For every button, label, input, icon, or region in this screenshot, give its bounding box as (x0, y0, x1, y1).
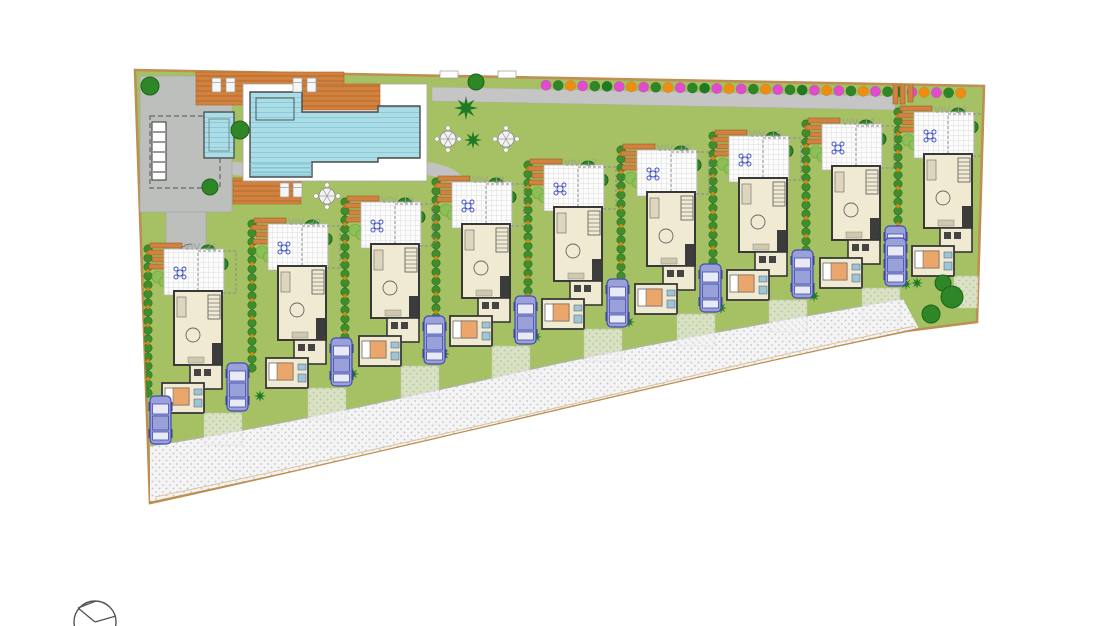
hedge-bush-icon (894, 153, 902, 161)
driveway-pad (677, 314, 715, 346)
boundary-bush-icon (553, 80, 563, 90)
kitchen-counter-icon (870, 218, 879, 240)
parked-car-icon (149, 396, 173, 444)
dining-table-icon (474, 261, 488, 275)
bath-fixture-icon (482, 332, 490, 340)
bedroom-annex (727, 270, 769, 300)
hedge-berry-icon (619, 260, 623, 264)
pergola-slat-icon (530, 159, 562, 164)
boundary-bush-icon (858, 86, 868, 96)
hedge-berry-icon (526, 203, 530, 207)
bath-fixture-icon (298, 364, 306, 370)
hedge-berry-icon (619, 170, 623, 174)
outdoor-kitchen-icon (152, 122, 166, 180)
bath-fixture-icon (391, 342, 399, 348)
sun-deck-south (233, 178, 301, 204)
bath-fixture-icon (391, 352, 399, 360)
parked-car-icon (330, 338, 354, 386)
hedge-berry-icon (146, 341, 150, 345)
boundary-bush-icon (834, 86, 844, 96)
sofa-icon (835, 172, 844, 192)
villa-label: VIV. 19 (381, 195, 414, 206)
hedge-bush-icon (617, 173, 625, 181)
hedge-berry-icon (711, 156, 715, 160)
boundary-bush-icon (773, 84, 783, 94)
bath-fixture-icon (574, 315, 582, 323)
bath-fixture-icon (759, 286, 767, 294)
hedge-berry-icon (804, 180, 808, 184)
driveway-pad (492, 346, 530, 378)
site-plan-svg: VIV. 13VIV. 14VIV. 15VIV. 16VIV. 17VIV. … (0, 0, 1110, 626)
terrace-tiles (268, 224, 328, 270)
hedge-bush-icon (524, 188, 532, 196)
terrace-tiles (822, 124, 882, 170)
bedroom-annex (450, 316, 492, 346)
parked-car-icon (514, 296, 538, 344)
boundary-bush-icon (712, 83, 722, 93)
parked-car-icon (226, 363, 250, 411)
stairs-icon (208, 295, 220, 319)
hedge-bush-icon (432, 259, 440, 267)
parked-car-icon (884, 238, 908, 286)
parked-car-icon (791, 250, 815, 298)
hedge-berry-icon (434, 256, 438, 260)
sofa-icon (465, 230, 474, 250)
hedge-bush-icon (617, 263, 625, 271)
bench-icon (498, 71, 516, 78)
hedge-berry-icon (434, 310, 438, 314)
driveway-pad (204, 413, 242, 445)
hedge-berry-icon (146, 359, 150, 363)
tree-icon (231, 121, 249, 139)
boundary-bush-icon (687, 83, 697, 93)
stairs-icon (866, 170, 878, 194)
boundary-bush-icon (821, 85, 831, 95)
hedge-bush-icon (894, 171, 902, 179)
hedge-bush-icon (144, 326, 152, 334)
hedge-berry-icon (896, 150, 900, 154)
villa-label: VIV. 21 (184, 242, 217, 253)
boundary-bush-icon (785, 85, 795, 95)
boundary-bush-icon (748, 84, 758, 94)
hedge-bush-icon (144, 308, 152, 316)
hedge-berry-icon (434, 292, 438, 296)
bath-fixture-icon (482, 322, 490, 328)
sun-lounger-icon (307, 78, 316, 92)
palm-icon (911, 277, 923, 289)
hedge-berry-icon (896, 186, 900, 190)
hedge-berry-icon (896, 204, 900, 208)
hedge-bush-icon (144, 290, 152, 298)
hedge-berry-icon (343, 240, 347, 244)
bath-fixture-icon (667, 290, 675, 296)
kitchen-counter-icon (685, 244, 694, 266)
hedge-berry-icon (526, 221, 530, 225)
sun-lounger-icon (293, 78, 302, 92)
kitchen-island-icon (292, 332, 308, 338)
bedroom-annex (820, 258, 862, 288)
stairs-icon (958, 158, 970, 182)
hedge-berry-icon (250, 352, 254, 356)
kitchen-counter-icon (316, 318, 325, 340)
hedge-berry-icon (804, 162, 808, 166)
sofa-icon (281, 272, 290, 292)
boundary-bush-icon (675, 83, 685, 93)
kitchen-island-icon (188, 357, 204, 363)
villa-label: VIV. 20 (288, 217, 321, 228)
hedge-bush-icon (524, 206, 532, 214)
boundary-bush-icon (699, 83, 709, 93)
hedge-berry-icon (250, 280, 254, 284)
hedge-bush-icon (248, 301, 256, 309)
boundary-bush-icon (541, 80, 551, 90)
hedge-bush-icon (524, 242, 532, 250)
bath-fixture-icon (574, 305, 582, 311)
hedge-bush-icon (894, 207, 902, 215)
hedge-berry-icon (711, 210, 715, 214)
hedge-berry-icon (434, 238, 438, 242)
hedge-bush-icon (709, 213, 717, 221)
hedge-bush-icon (709, 177, 717, 185)
hedge-berry-icon (250, 316, 254, 320)
boundary-bush-icon (614, 81, 624, 91)
stairs-icon (588, 211, 600, 235)
hedge-berry-icon (526, 257, 530, 261)
boundary-bush-icon (724, 83, 734, 93)
boundary-bush-icon (663, 82, 673, 92)
kitchen-counter-icon (500, 276, 509, 298)
hedge-bush-icon (524, 224, 532, 232)
boundary-bush-icon (797, 85, 807, 95)
villa-label: VIV. 15 (749, 129, 782, 140)
hedge-bush-icon (617, 209, 625, 217)
kitchen-counter-icon (962, 206, 971, 228)
terrace-tiles (637, 150, 697, 196)
hedge-berry-icon (343, 276, 347, 280)
dining-table-icon (290, 303, 304, 317)
hedge-bush-icon (617, 227, 625, 235)
driveway-pad (308, 388, 346, 420)
hedge-bush-icon (802, 165, 810, 173)
boundary-bush-icon (919, 87, 929, 97)
tree-icon (202, 179, 218, 195)
hedge-berry-icon (619, 242, 623, 246)
hedge-bush-icon (341, 315, 349, 323)
pergola-slat-icon (623, 144, 655, 149)
boundary-bush-icon (956, 88, 966, 98)
boundary-bush-icon (760, 84, 770, 94)
stairs-icon (405, 248, 417, 272)
bath-fixture-icon (194, 389, 202, 395)
pergola-slat-icon (808, 118, 840, 123)
pergola-slat-icon (900, 106, 932, 111)
pergola-slat-icon (254, 218, 286, 223)
kitchen-counter-icon (212, 343, 221, 365)
dining-table-icon (566, 244, 580, 258)
terrace-tiles (544, 165, 604, 211)
hedge-berry-icon (526, 239, 530, 243)
kitchen-island-icon (385, 310, 401, 316)
kitchen-island-icon (753, 244, 769, 250)
driveway-pad (584, 329, 622, 361)
bath-fixture-icon (852, 274, 860, 282)
hedge-berry-icon (250, 298, 254, 302)
hedge-bush-icon (144, 344, 152, 352)
terrace-tiles (164, 249, 224, 295)
boundary-bush-icon (638, 82, 648, 92)
boundary-bush-icon (736, 84, 746, 94)
bedroom-annex (266, 358, 308, 388)
pergola-slat-icon (347, 196, 379, 201)
bath-fixture-icon (944, 252, 952, 258)
boundary-bush-icon (882, 86, 892, 96)
bench-icon (440, 71, 458, 78)
kitchen-island-icon (846, 232, 862, 238)
boundary-bush-icon (651, 82, 661, 92)
dining-table-icon (844, 203, 858, 217)
kitchen-island-icon (476, 290, 492, 296)
dining-table-icon (659, 229, 673, 243)
kitchen-counter-icon (777, 230, 786, 252)
tree-icon (941, 286, 963, 308)
hedge-bush-icon (248, 355, 256, 363)
bedroom-annex (359, 336, 401, 366)
hedge-bush-icon (248, 319, 256, 327)
boundary-bush-icon (870, 86, 880, 96)
hedge-berry-icon (896, 132, 900, 136)
terrace-tiles (914, 112, 974, 158)
boundary-bush-icon (565, 80, 575, 90)
hedge-berry-icon (804, 234, 808, 238)
bath-fixture-icon (194, 399, 202, 407)
hedge-bush-icon (144, 272, 152, 280)
hedge-berry-icon (896, 168, 900, 172)
pergola-slat-icon (715, 130, 747, 135)
hedge-berry-icon (619, 224, 623, 228)
driveway-pad (401, 366, 439, 398)
hedge-bush-icon (894, 135, 902, 143)
hedge-bush-icon (524, 278, 532, 286)
hedge-bush-icon (248, 265, 256, 273)
hedge-bush-icon (248, 247, 256, 255)
sofa-icon (650, 198, 659, 218)
pergola-slat-icon (438, 176, 470, 181)
hedge-bush-icon (432, 295, 440, 303)
hedge-berry-icon (343, 258, 347, 262)
bedroom-annex (912, 246, 954, 276)
site-plan-canvas: VIV. 13VIV. 14VIV. 15VIV. 16VIV. 17VIV. … (0, 0, 1110, 626)
hedge-bush-icon (802, 183, 810, 191)
hedge-berry-icon (804, 216, 808, 220)
hedge-bush-icon (802, 237, 810, 245)
hedge-berry-icon (434, 220, 438, 224)
parked-car-icon (699, 264, 723, 312)
stairs-icon (496, 228, 508, 252)
hedge-bush-icon (248, 337, 256, 345)
stairs-icon (773, 182, 785, 206)
tree-icon (141, 77, 159, 95)
hedge-berry-icon (343, 222, 347, 226)
dining-table-icon (936, 191, 950, 205)
tree-icon (922, 305, 940, 323)
bath-fixture-icon (298, 374, 306, 382)
hedge-berry-icon (146, 305, 150, 309)
hedge-bush-icon (802, 219, 810, 227)
sofa-icon (557, 213, 566, 233)
dining-table-icon (186, 328, 200, 342)
bath-fixture-icon (852, 264, 860, 270)
stairs-icon (681, 196, 693, 220)
driveway-pad (862, 288, 900, 320)
kitchen-island-icon (661, 258, 677, 264)
hedge-berry-icon (343, 330, 347, 334)
hedge-bush-icon (341, 279, 349, 287)
hedge-berry-icon (250, 334, 254, 338)
hedge-bush-icon (617, 191, 625, 199)
hedge-berry-icon (804, 198, 808, 202)
boundary-bush-icon (846, 86, 856, 96)
hedge-berry-icon (711, 192, 715, 196)
hedge-bush-icon (894, 189, 902, 197)
terrace-tiles (361, 202, 421, 248)
hedge-berry-icon (896, 222, 900, 226)
hedge-berry-icon (146, 323, 150, 327)
sun-lounger-icon (280, 183, 289, 197)
hedge-bush-icon (524, 260, 532, 268)
hedge-berry-icon (434, 274, 438, 278)
boundary-bush-icon (809, 85, 819, 95)
boundary-bush-icon (626, 82, 636, 92)
villa-label: VIV. 18 (472, 175, 505, 186)
hedge-bush-icon (341, 297, 349, 305)
sun-lounger-icon (212, 78, 221, 92)
villa-label: VIV. 13 (934, 105, 967, 116)
hedge-berry-icon (619, 206, 623, 210)
palm-icon (454, 96, 478, 120)
boundary-bush-icon (931, 87, 941, 97)
hedge-bush-icon (341, 261, 349, 269)
terrace-tiles (452, 182, 512, 228)
villa-label: VIV. 16 (657, 143, 690, 154)
boundary-bush-icon (602, 81, 612, 91)
villa-label: VIV. 17 (564, 158, 597, 169)
bedroom-annex (635, 284, 677, 314)
hedge-berry-icon (146, 269, 150, 273)
hedge-bush-icon (709, 231, 717, 239)
sofa-icon (742, 184, 751, 204)
hedge-berry-icon (434, 202, 438, 206)
stairs-icon (312, 270, 324, 294)
bath-fixture-icon (759, 276, 767, 282)
driveway-pad (769, 300, 807, 332)
dining-table-icon (383, 281, 397, 295)
hedge-bush-icon (341, 225, 349, 233)
hedge-berry-icon (526, 275, 530, 279)
kitchen-counter-icon (409, 296, 418, 318)
hedge-bush-icon (709, 195, 717, 203)
kitchen-counter-icon (592, 259, 601, 281)
hedge-bush-icon (341, 243, 349, 251)
pergola-slat-icon (150, 243, 182, 248)
hedge-berry-icon (619, 188, 623, 192)
sofa-icon (374, 250, 383, 270)
palm-icon (464, 131, 482, 149)
hedge-berry-icon (250, 244, 254, 248)
hedge-berry-icon (146, 287, 150, 291)
hedge-bush-icon (709, 159, 717, 167)
hedge-berry-icon (250, 262, 254, 266)
sun-lounger-icon (293, 183, 302, 197)
hedge-berry-icon (343, 294, 347, 298)
hedge-bush-icon (709, 249, 717, 257)
hedge-berry-icon (711, 174, 715, 178)
bath-fixture-icon (944, 262, 952, 270)
hedge-berry-icon (526, 185, 530, 189)
boundary-bush-icon (577, 81, 587, 91)
hedge-bush-icon (802, 147, 810, 155)
hedge-berry-icon (804, 144, 808, 148)
dining-table-icon (751, 215, 765, 229)
sun-lounger-icon (226, 78, 235, 92)
sofa-icon (177, 297, 186, 317)
kitchen-island-icon (568, 273, 584, 279)
hedge-bush-icon (802, 201, 810, 209)
parked-car-icon (606, 279, 630, 327)
hedge-berry-icon (711, 228, 715, 232)
hedge-bush-icon (248, 283, 256, 291)
bath-fixture-icon (667, 300, 675, 308)
hedge-berry-icon (146, 377, 150, 381)
hedge-berry-icon (711, 246, 715, 250)
bedroom-annex (542, 299, 584, 329)
kitchen-island-icon (938, 220, 954, 226)
hedge-bush-icon (617, 245, 625, 253)
parked-car-icon (423, 316, 447, 364)
hedge-berry-icon (343, 312, 347, 316)
boundary-bush-icon (943, 88, 953, 98)
boundary-bush-icon (590, 81, 600, 91)
tree-icon (468, 74, 484, 90)
hedge-bush-icon (432, 277, 440, 285)
sofa-icon (927, 160, 936, 180)
terrace-tiles (729, 136, 789, 182)
villa-label: VIV. 14 (842, 117, 875, 128)
